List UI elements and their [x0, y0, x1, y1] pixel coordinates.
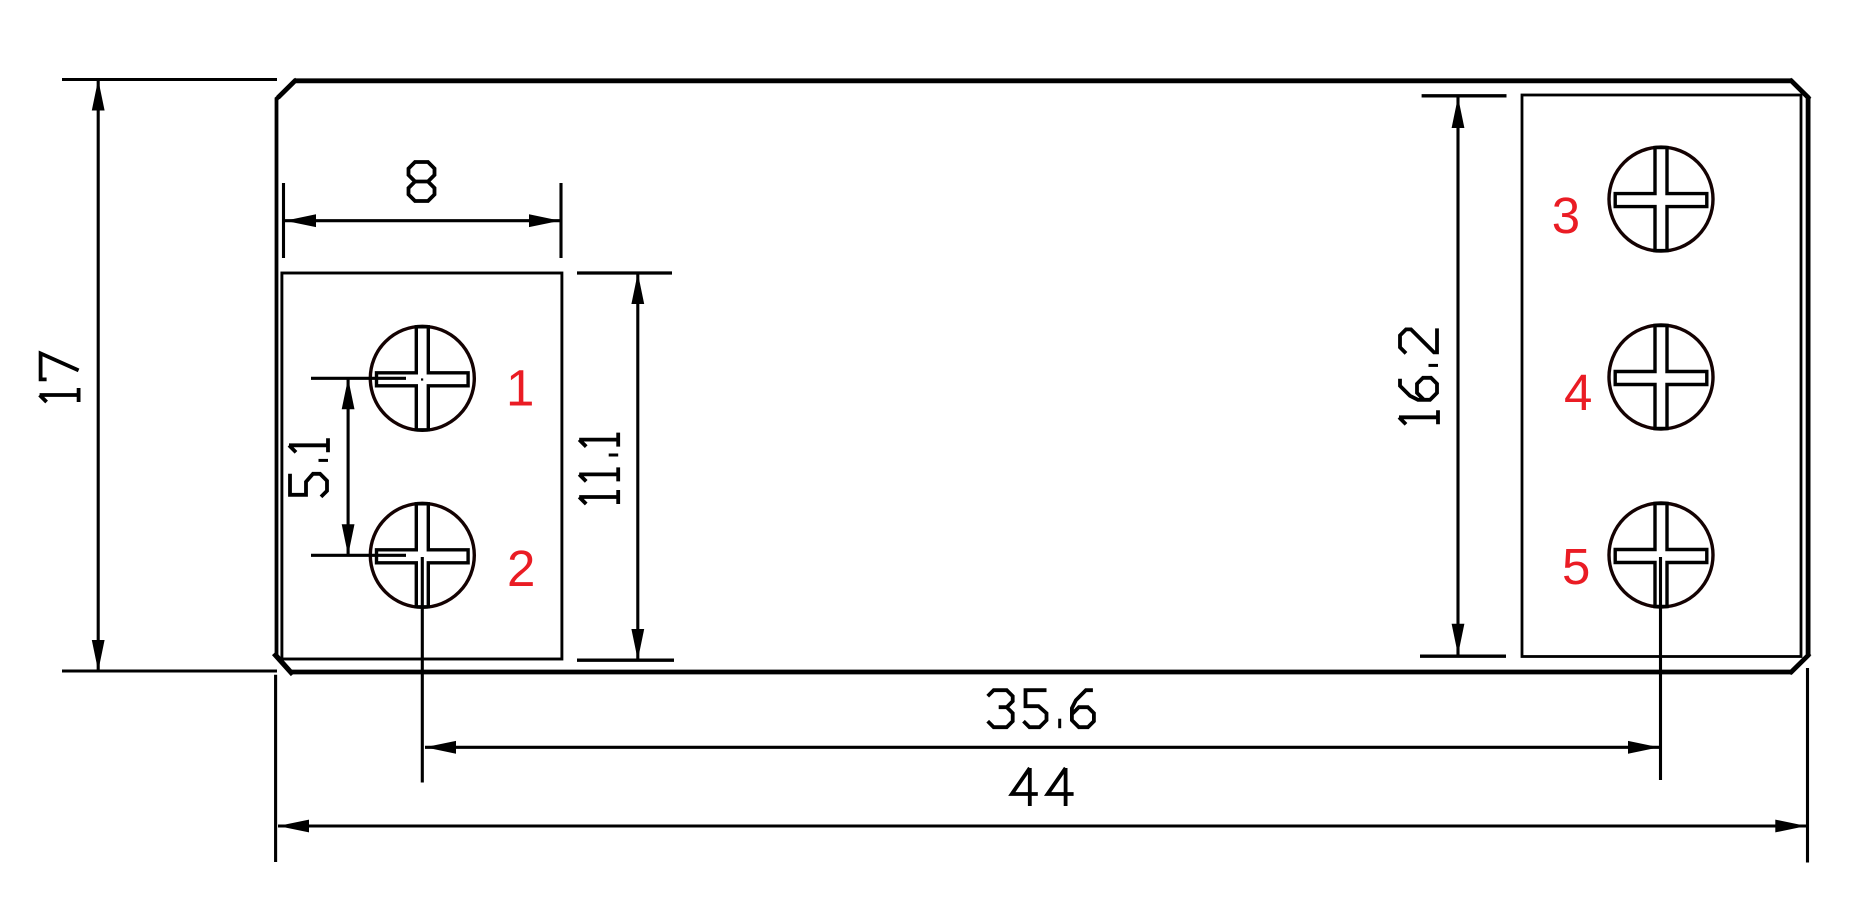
svg-text:1: 1 [506, 360, 534, 417]
svg-text:2: 2 [507, 540, 535, 597]
svg-text:3: 3 [1552, 187, 1580, 244]
svg-text:4: 4 [1564, 364, 1592, 421]
svg-text:5: 5 [1562, 538, 1590, 595]
